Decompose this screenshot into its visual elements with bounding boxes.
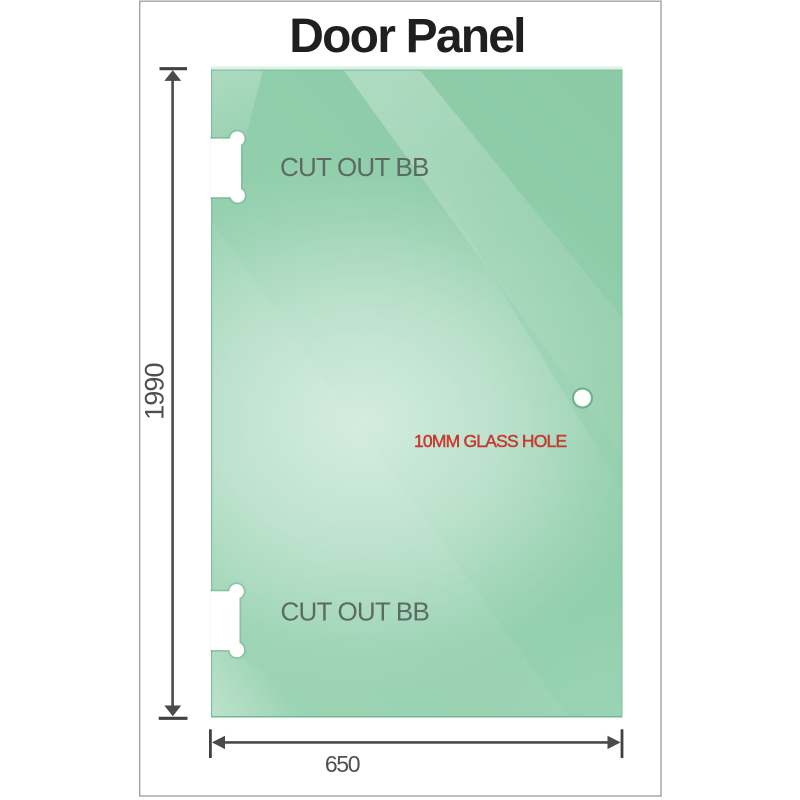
svg-text:1990: 1990 bbox=[140, 363, 170, 419]
svg-text:650: 650 bbox=[325, 751, 360, 777]
svg-text:CUT OUT BB: CUT OUT BB bbox=[281, 597, 430, 627]
svg-text:Door Panel: Door Panel bbox=[289, 10, 524, 63]
svg-text:10MM GLASS HOLE: 10MM GLASS HOLE bbox=[414, 431, 566, 451]
svg-text:CUT OUT BB: CUT OUT BB bbox=[280, 152, 429, 182]
